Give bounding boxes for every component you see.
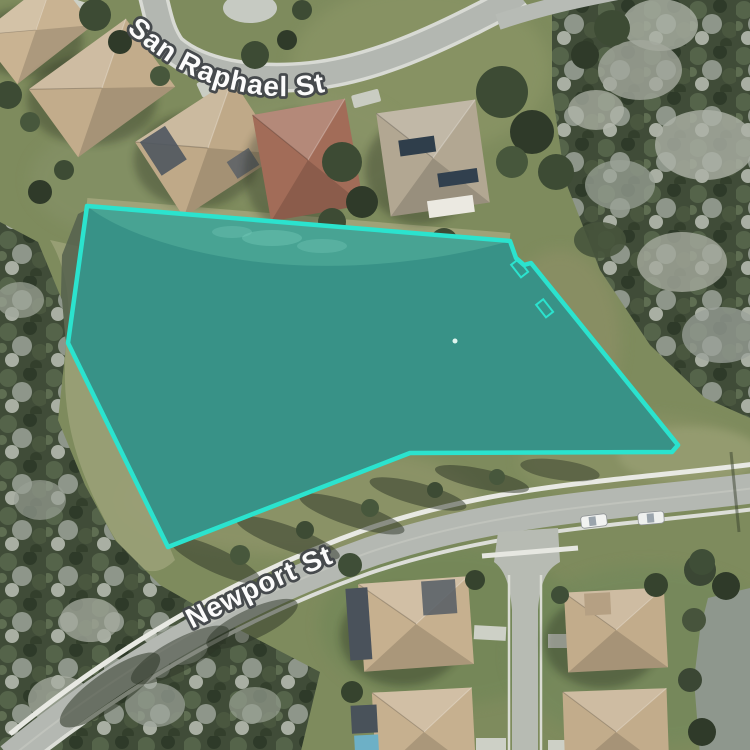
house-roof — [358, 576, 474, 671]
screen-enclosure — [351, 704, 378, 733]
dark-roof-section — [421, 579, 457, 615]
satellite-map[interactable]: San Raphael St Newport St — [0, 0, 750, 750]
pond-object — [453, 339, 458, 344]
swimming-pool — [354, 734, 379, 750]
roof-section — [584, 592, 611, 615]
house-roof — [564, 587, 668, 672]
house-roof — [372, 687, 476, 750]
map-viewport[interactable]: San Raphael St Newport St — [0, 0, 750, 750]
water-ripple — [297, 239, 347, 253]
water-ripple — [212, 226, 252, 238]
house-roof — [563, 688, 670, 750]
car-white — [638, 511, 665, 525]
